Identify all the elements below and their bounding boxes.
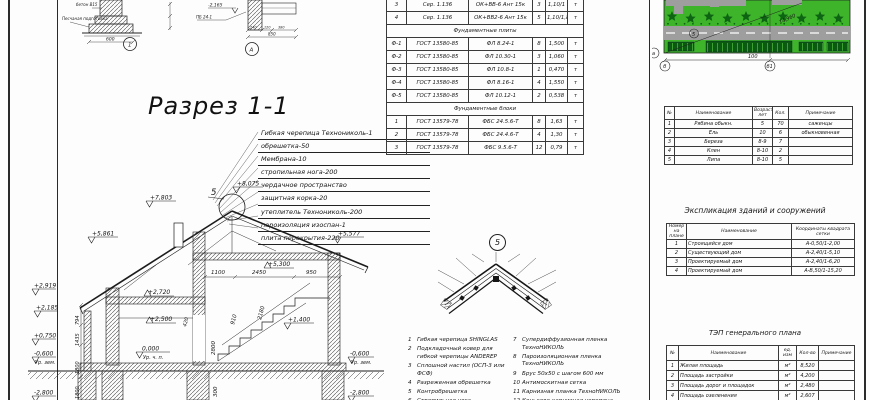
list-item: 5Контробрешетка: [408, 389, 510, 397]
table-cell: т: [568, 116, 584, 129]
table-cell: саженцы: [789, 120, 853, 129]
table-cell: [789, 156, 853, 165]
table-cell: ФЛ 8.24-1: [469, 38, 533, 51]
svg-text:-2,800: -2,800: [350, 390, 370, 397]
table-cell: 8-10: [753, 147, 773, 156]
svg-text:910: 910: [230, 313, 239, 325]
detailA-dim1: 240: [250, 26, 256, 30]
table-cell: [789, 138, 853, 147]
table-cell: Проектируемый дом: [687, 267, 792, 276]
shrub-icon: [684, 23, 686, 25]
table-cell: 1,550: [546, 77, 568, 90]
detailA-bubble-label: А: [249, 48, 254, 54]
table-cell: ГОСТ 13580-85: [407, 77, 469, 90]
table-cell: [819, 371, 855, 381]
detail1-sand-label: Песчаная подготовка: [62, 16, 108, 21]
table-cell: ГОСТ 13580-85: [407, 51, 469, 64]
svg-text:+5,300: +5,300: [268, 261, 290, 268]
table-cell: Площадь дорог и площадок: [679, 381, 779, 391]
table-cell: 1: [533, 64, 546, 77]
table-cell: ОК+ВВ-6 Ант 15к: [469, 0, 533, 12]
svg-text:1800: 1800: [75, 386, 81, 399]
table-cell: 2: [533, 90, 546, 103]
column-header: Возраст, лет: [753, 107, 773, 120]
table-cell: м²: [779, 381, 797, 391]
table-cell: Ф-2: [387, 51, 407, 64]
column-header: №: [667, 346, 679, 361]
table-cell: 4: [533, 129, 546, 142]
table-cell: Жилая площадь: [679, 361, 779, 371]
column-header: ед. изм: [779, 346, 797, 361]
table-cell: Ф-5: [387, 90, 407, 103]
svg-text:420: 420: [182, 317, 190, 328]
table-cell: т: [568, 51, 584, 64]
svg-text:1435: 1435: [75, 333, 81, 346]
table-cell: А-В,50/1-15,20: [792, 267, 855, 276]
drawing-sheet: бетон В15 Песчаная подготовка 600 1 -2,1…: [0, 0, 870, 400]
table-cell: Рябина обыкн.: [675, 120, 753, 129]
column-header: Наименование: [679, 346, 779, 361]
table-cell: ГОСТ 13579-78: [407, 142, 469, 155]
site-plan: 5 14,960 100 а б б1: [652, 0, 868, 74]
detail1-concrete-label: бетон В15: [76, 2, 98, 7]
table-cell: 1,10/1: [546, 0, 568, 12]
svg-text:2450: 2450: [252, 270, 266, 276]
column-header: Наименование: [675, 107, 753, 120]
table-cell: т: [568, 90, 584, 103]
table-cell: 2: [665, 129, 675, 138]
svg-text:5: 5: [211, 188, 216, 198]
svg-text:+5,861: +5,861: [92, 231, 114, 238]
table-cell: Проектируемый дом: [687, 258, 792, 267]
svg-text:950: 950: [306, 270, 317, 276]
table-row: 4Проектируемый домА-В,50/1-15,20: [667, 267, 855, 276]
shrub-icon: [758, 23, 760, 25]
shrub-icon: [767, 23, 769, 25]
table-cell: 10: [753, 129, 773, 138]
table-cell: 3: [533, 51, 546, 64]
shrub-icon: [709, 23, 711, 25]
table-cell: 3: [667, 258, 687, 267]
table-cell: 5: [533, 12, 546, 25]
table-cell: 2: [667, 249, 687, 258]
column-header: Координаты квадрата сетки: [792, 224, 855, 240]
table-cell: обыкновенная: [789, 129, 853, 138]
table-row: 5Липа8-105: [665, 156, 853, 165]
header-row: №Наименованиеед. измКол-воПримечание: [667, 346, 855, 361]
table-cell: т: [568, 12, 584, 25]
table-cell: ГОСТ 13580-85: [407, 64, 469, 77]
table-row: 1ГОСТ 13579-78ФБС 24.5.6-Т81,63т: [387, 116, 584, 129]
shrub-icon: [792, 23, 794, 25]
svg-text:+7,803: +7,803: [150, 195, 172, 202]
column-header: Примечание: [789, 107, 853, 120]
section-title: Разрез 1-1: [148, 92, 290, 120]
table-cell: 0,538: [546, 90, 568, 103]
table-cell: 1: [667, 240, 687, 249]
tep-table: №Наименованиеед. измКол-воПримечание1Жил…: [666, 345, 855, 400]
svg-text:0,000: 0,000: [142, 346, 159, 353]
shrub-icon: [817, 23, 819, 25]
table-cell: А-2,40/1-6,20: [792, 258, 855, 267]
table-cell: 8: [533, 38, 546, 51]
table-row: Фундаментные плиты: [387, 25, 584, 38]
list-item: 3Сплошной настил (ОСП-3 или ФСФ): [408, 363, 510, 378]
column-header: Кол-во: [797, 346, 819, 361]
detailA-label: ПБ 24-1: [196, 15, 212, 20]
table-row: 1Жилая площадьм²8,520: [667, 361, 855, 371]
table-cell: [819, 391, 855, 400]
table-cell: ГОСТ 13579-78: [407, 129, 469, 142]
table-cell: Сер. 1.136: [407, 12, 469, 25]
table-cell: т: [568, 38, 584, 51]
table-cell: 8,520: [797, 361, 819, 371]
header-row: №НаименованиеВозраст, летКол.Примечание: [665, 107, 853, 120]
ridge-detail-drawing: [432, 250, 562, 336]
table-row: Ф-5ГОСТ 13580-85ФЛ 10.12-120,538т: [387, 90, 584, 103]
table-cell: 1,63: [546, 116, 568, 129]
table-cell: 2,607: [797, 391, 819, 400]
detailA-total-dim: 850: [268, 32, 276, 37]
ground-and-foundations: [28, 371, 384, 400]
list-item: 9Брус 50х50 с шагом 600 мм: [513, 371, 641, 379]
table-cell: Липа: [675, 156, 753, 165]
table-row: 3Площадь дорог и площадокм²2,480: [667, 381, 855, 391]
table-cell: 1,500: [546, 38, 568, 51]
svg-text:Ур. зем.: Ур. зем.: [351, 360, 372, 366]
table-cell: 2: [667, 371, 679, 381]
table-cell: Сер. 1.136: [407, 0, 469, 12]
svg-text:б: б: [663, 64, 666, 70]
list-item: 4Разреженная обрешетка: [408, 380, 510, 388]
table-row: Ф-1ГОСТ 13580-85ФЛ 8.24-181,500т: [387, 38, 584, 51]
table-cell: 2: [773, 147, 789, 156]
table-cell: Строящийся дом: [687, 240, 792, 249]
ridge-legend-right: 7Супердиффузионная пленка ТехноНИКОЛЬ8Па…: [513, 337, 641, 400]
table-cell: 4: [667, 267, 687, 276]
svg-text:а: а: [652, 51, 655, 57]
table-cell: ГОСТ 13580-85: [407, 90, 469, 103]
table-cell: ФЛ 10.30-1: [469, 51, 533, 64]
shrub-icon: [667, 23, 669, 25]
table-cell: 0,470: [546, 64, 568, 77]
detailA-dim3: 380: [278, 26, 284, 30]
table-row: 2Площадь застройким²4,200: [667, 371, 855, 381]
node5-bubble: 5: [489, 234, 506, 251]
svg-text:2800: 2800: [211, 341, 217, 355]
building-section-drawing: 1100 2450 950 910 2180 420 2800 300 794 …: [28, 165, 384, 400]
shrub-icon: [775, 23, 777, 25]
svg-text:794: 794: [75, 315, 81, 325]
table-cell: 3: [665, 138, 675, 147]
table-row: 2Ель106обыкновенная: [665, 129, 853, 138]
table-cell: 1,30: [546, 129, 568, 142]
table-row: 3ГОСТ 13579-78ФБС 9.5.6-Т120,79т: [387, 142, 584, 155]
specification-table: 3Сер. 1.136ОК+ВВ-6 Ант 15к31,10/1т4Сер. …: [386, 0, 584, 155]
foundation-detail-1: бетон В15 Песчаная подготовка 600 1: [62, 0, 192, 55]
list-item: 10Антимоскитная сетка: [513, 380, 641, 388]
table-cell: 8-10: [753, 156, 773, 165]
svg-text:-0,600: -0,600: [350, 351, 370, 358]
table-cell: Клен: [675, 147, 753, 156]
shrub-icon: [750, 23, 752, 25]
svg-text:-0,600: -0,600: [34, 351, 54, 358]
table-cell: 4: [533, 77, 546, 90]
table-cell: 8: [533, 116, 546, 129]
table-cell: ГОСТ 13580-85: [407, 38, 469, 51]
table-cell: 4,200: [797, 371, 819, 381]
column-header: Наименование: [687, 224, 792, 240]
table-cell: т: [568, 129, 584, 142]
header-row: Номер на планеНаименованиеКоординаты ква…: [667, 224, 855, 240]
table-cell: 3: [387, 142, 407, 155]
table-cell: 7: [773, 138, 789, 147]
svg-text:1800: 1800: [75, 361, 81, 374]
column-header: Номер на плане: [667, 224, 687, 240]
table-row: 4Площадь озеленениям²2,607: [667, 391, 855, 400]
svg-text:1100: 1100: [211, 270, 225, 276]
svg-text:2180: 2180: [257, 305, 267, 321]
table-cell: 5: [665, 156, 675, 165]
table-row: Ф-2ГОСТ 13580-85ФЛ 10.30-131,060т: [387, 51, 584, 64]
table-cell: Ф-4: [387, 77, 407, 90]
tep-title: ТЭП генерального плана: [655, 329, 855, 337]
table-row: 1Строящийся домА-0,50/1-2,00: [667, 240, 855, 249]
explication-title: Экспликация зданий и сооружений: [655, 206, 855, 215]
table-row: 1Рябина обыкн.570саженцы: [665, 120, 853, 129]
svg-text:+1,400: +1,400: [288, 317, 310, 324]
table-cell: т: [568, 142, 584, 155]
svg-text:+8,075: +8,075: [237, 181, 259, 188]
shrub-icon: [800, 23, 802, 25]
svg-text:+5,577: +5,577: [338, 231, 360, 238]
table-cell: Ф-3: [387, 64, 407, 77]
table-cell: 4: [665, 147, 675, 156]
column-header: Примечание: [819, 346, 855, 361]
shrub-icon: [725, 23, 727, 25]
table-cell: ФЛ 10.8-1: [469, 64, 533, 77]
list-item: 2Подкладочный ковер для гибкой черепицы …: [408, 346, 510, 361]
table-row: 3Сер. 1.136ОК+ВВ-6 Ант 15к31,10/1т: [387, 0, 584, 12]
column-header: №: [665, 107, 675, 120]
ridge-legend-left: 1Гибкая черепица SHINGLAS2Подкладочный к…: [408, 337, 510, 400]
table-row: Ф-3ГОСТ 13580-85ФЛ 10.8-110,470т: [387, 64, 584, 77]
table-cell: 2: [387, 129, 407, 142]
shrub-icon: [734, 23, 736, 25]
svg-text:5: 5: [692, 32, 695, 38]
table-cell: ФБС 24.5.6-Т: [469, 116, 533, 129]
table-cell: ФЛ 10.12-1: [469, 90, 533, 103]
svg-text:б1: б1: [767, 64, 773, 70]
table-cell: Площадь озеленения: [679, 391, 779, 400]
detail1-dim: 600: [106, 37, 115, 43]
table-cell: 2,480: [797, 381, 819, 391]
table-cell: ОК+ВВ2-6 Ант 15к: [469, 12, 533, 25]
table-cell: 4: [667, 391, 679, 400]
table-row: 4Клен8-102: [665, 147, 853, 156]
list-item: 1Гибкая черепица SHINGLAS: [408, 337, 510, 345]
shrub-icon: [825, 23, 827, 25]
svg-text:+0,750: +0,750: [34, 333, 56, 340]
table-cell: ФБС 24.4.6-Т: [469, 129, 533, 142]
table-cell: Береза: [675, 138, 753, 147]
table-cell: 4: [387, 12, 407, 25]
svg-text:Ур. зем.: Ур. зем.: [35, 360, 56, 366]
table-cell: т: [568, 64, 584, 77]
table-cell: [819, 361, 855, 371]
table-cell: м²: [779, 361, 797, 371]
table-cell: 70: [773, 120, 789, 129]
shrub-icon: [808, 23, 810, 25]
table-cell: 1: [665, 120, 675, 129]
table-cell: Площадь застройки: [679, 371, 779, 381]
shrub-icon: [692, 23, 694, 25]
table-cell: Ф-1: [387, 38, 407, 51]
table-cell: 1: [387, 116, 407, 129]
table-cell: 1,060: [546, 51, 568, 64]
shrub-icon: [675, 23, 677, 25]
detail1-bubble-label: 1: [128, 43, 132, 49]
shrub-icon: [833, 23, 835, 25]
table-cell: 12: [533, 142, 546, 155]
frame-line-middle: [649, 0, 650, 400]
list-item: 11Карнизная планка ТехноНИКОЛЬ: [513, 389, 641, 397]
section-header-cell: Фундаментные плиты: [387, 25, 584, 38]
svg-text:+2,919: +2,919: [34, 283, 56, 290]
table-cell: А-2,40/1-5,10: [792, 249, 855, 258]
table-cell: Существующий дом: [687, 249, 792, 258]
table-cell: 3: [667, 381, 679, 391]
svg-text:-2,800: -2,800: [34, 390, 54, 397]
table-row: Ф-4ГОСТ 13580-85ФЛ 8.16-141,550т: [387, 77, 584, 90]
shrub-icon: [700, 23, 702, 25]
section-header-cell: Фундаментные блоки: [387, 103, 584, 116]
table-cell: 3: [533, 0, 546, 12]
detailA-elev: -2,165: [208, 3, 223, 9]
table-cell: 0,79: [546, 142, 568, 155]
svg-text:+2,500: +2,500: [150, 316, 172, 323]
detailA-dim2: 120: [264, 26, 270, 30]
table-cell: 3: [387, 0, 407, 12]
explication-table: Номер на планеНаименованиеКоординаты ква…: [666, 223, 855, 276]
table-cell: 6: [773, 129, 789, 138]
table-row: 4Сер. 1.136ОК+ВВ2-6 Ант 15к51,10/1,8т: [387, 12, 584, 25]
table-cell: м²: [779, 391, 797, 400]
table-cell: м²: [779, 371, 797, 381]
table-cell: т: [568, 77, 584, 90]
shrub-icon: [841, 23, 843, 25]
table-row: 2ГОСТ 13579-78ФБС 24.4.6-Т41,30т: [387, 129, 584, 142]
svg-text:Ур. ч. п.: Ур. ч. п.: [143, 355, 163, 361]
table-cell: т: [568, 0, 584, 12]
foundation-detail-A: -2,165 ПБ 24-1 240 120 380 850 А: [192, 0, 307, 60]
sheet-edge-left: [8, 0, 10, 400]
table-cell: [819, 381, 855, 391]
svg-text:300: 300: [213, 386, 219, 397]
table-row: 3Береза8-97: [665, 138, 853, 147]
table-row: 2Существующий домА-2,40/1-5,10: [667, 249, 855, 258]
table-cell: Ель: [675, 129, 753, 138]
table-cell: ФЛ 8.16-1: [469, 77, 533, 90]
table-cell: 8-9: [753, 138, 773, 147]
list-item: 8Пароизоляционная пленка ТехноНИКОЛЬ: [513, 354, 641, 369]
table-cell: 5: [773, 156, 789, 165]
table-cell: ГОСТ 13579-78: [407, 116, 469, 129]
table-row: Фундаментные блоки: [387, 103, 584, 116]
table-cell: 1: [667, 361, 679, 371]
svg-text:+2,185: +2,185: [36, 305, 58, 312]
svg-text:+2,720: +2,720: [148, 289, 170, 296]
table-cell: ФБС 9.5.6-Т: [469, 142, 533, 155]
table-cell: 1,10/1,8: [546, 12, 568, 25]
table-cell: А-0,50/1-2,00: [792, 240, 855, 249]
shrub-icon: [717, 23, 719, 25]
column-header: Кол.: [773, 107, 789, 120]
planting-table: №НаименованиеВозраст, летКол.Примечание1…: [664, 106, 853, 165]
table-cell: 5: [753, 120, 773, 129]
svg-text:100: 100: [748, 54, 758, 60]
list-item: 7Супердиффузионная пленка ТехноНИКОЛЬ: [513, 337, 641, 352]
table-cell: [789, 147, 853, 156]
table-row: 3Проектируемый домА-2,40/1-6,20: [667, 258, 855, 267]
plan-dimension-line: 100: [663, 54, 850, 62]
